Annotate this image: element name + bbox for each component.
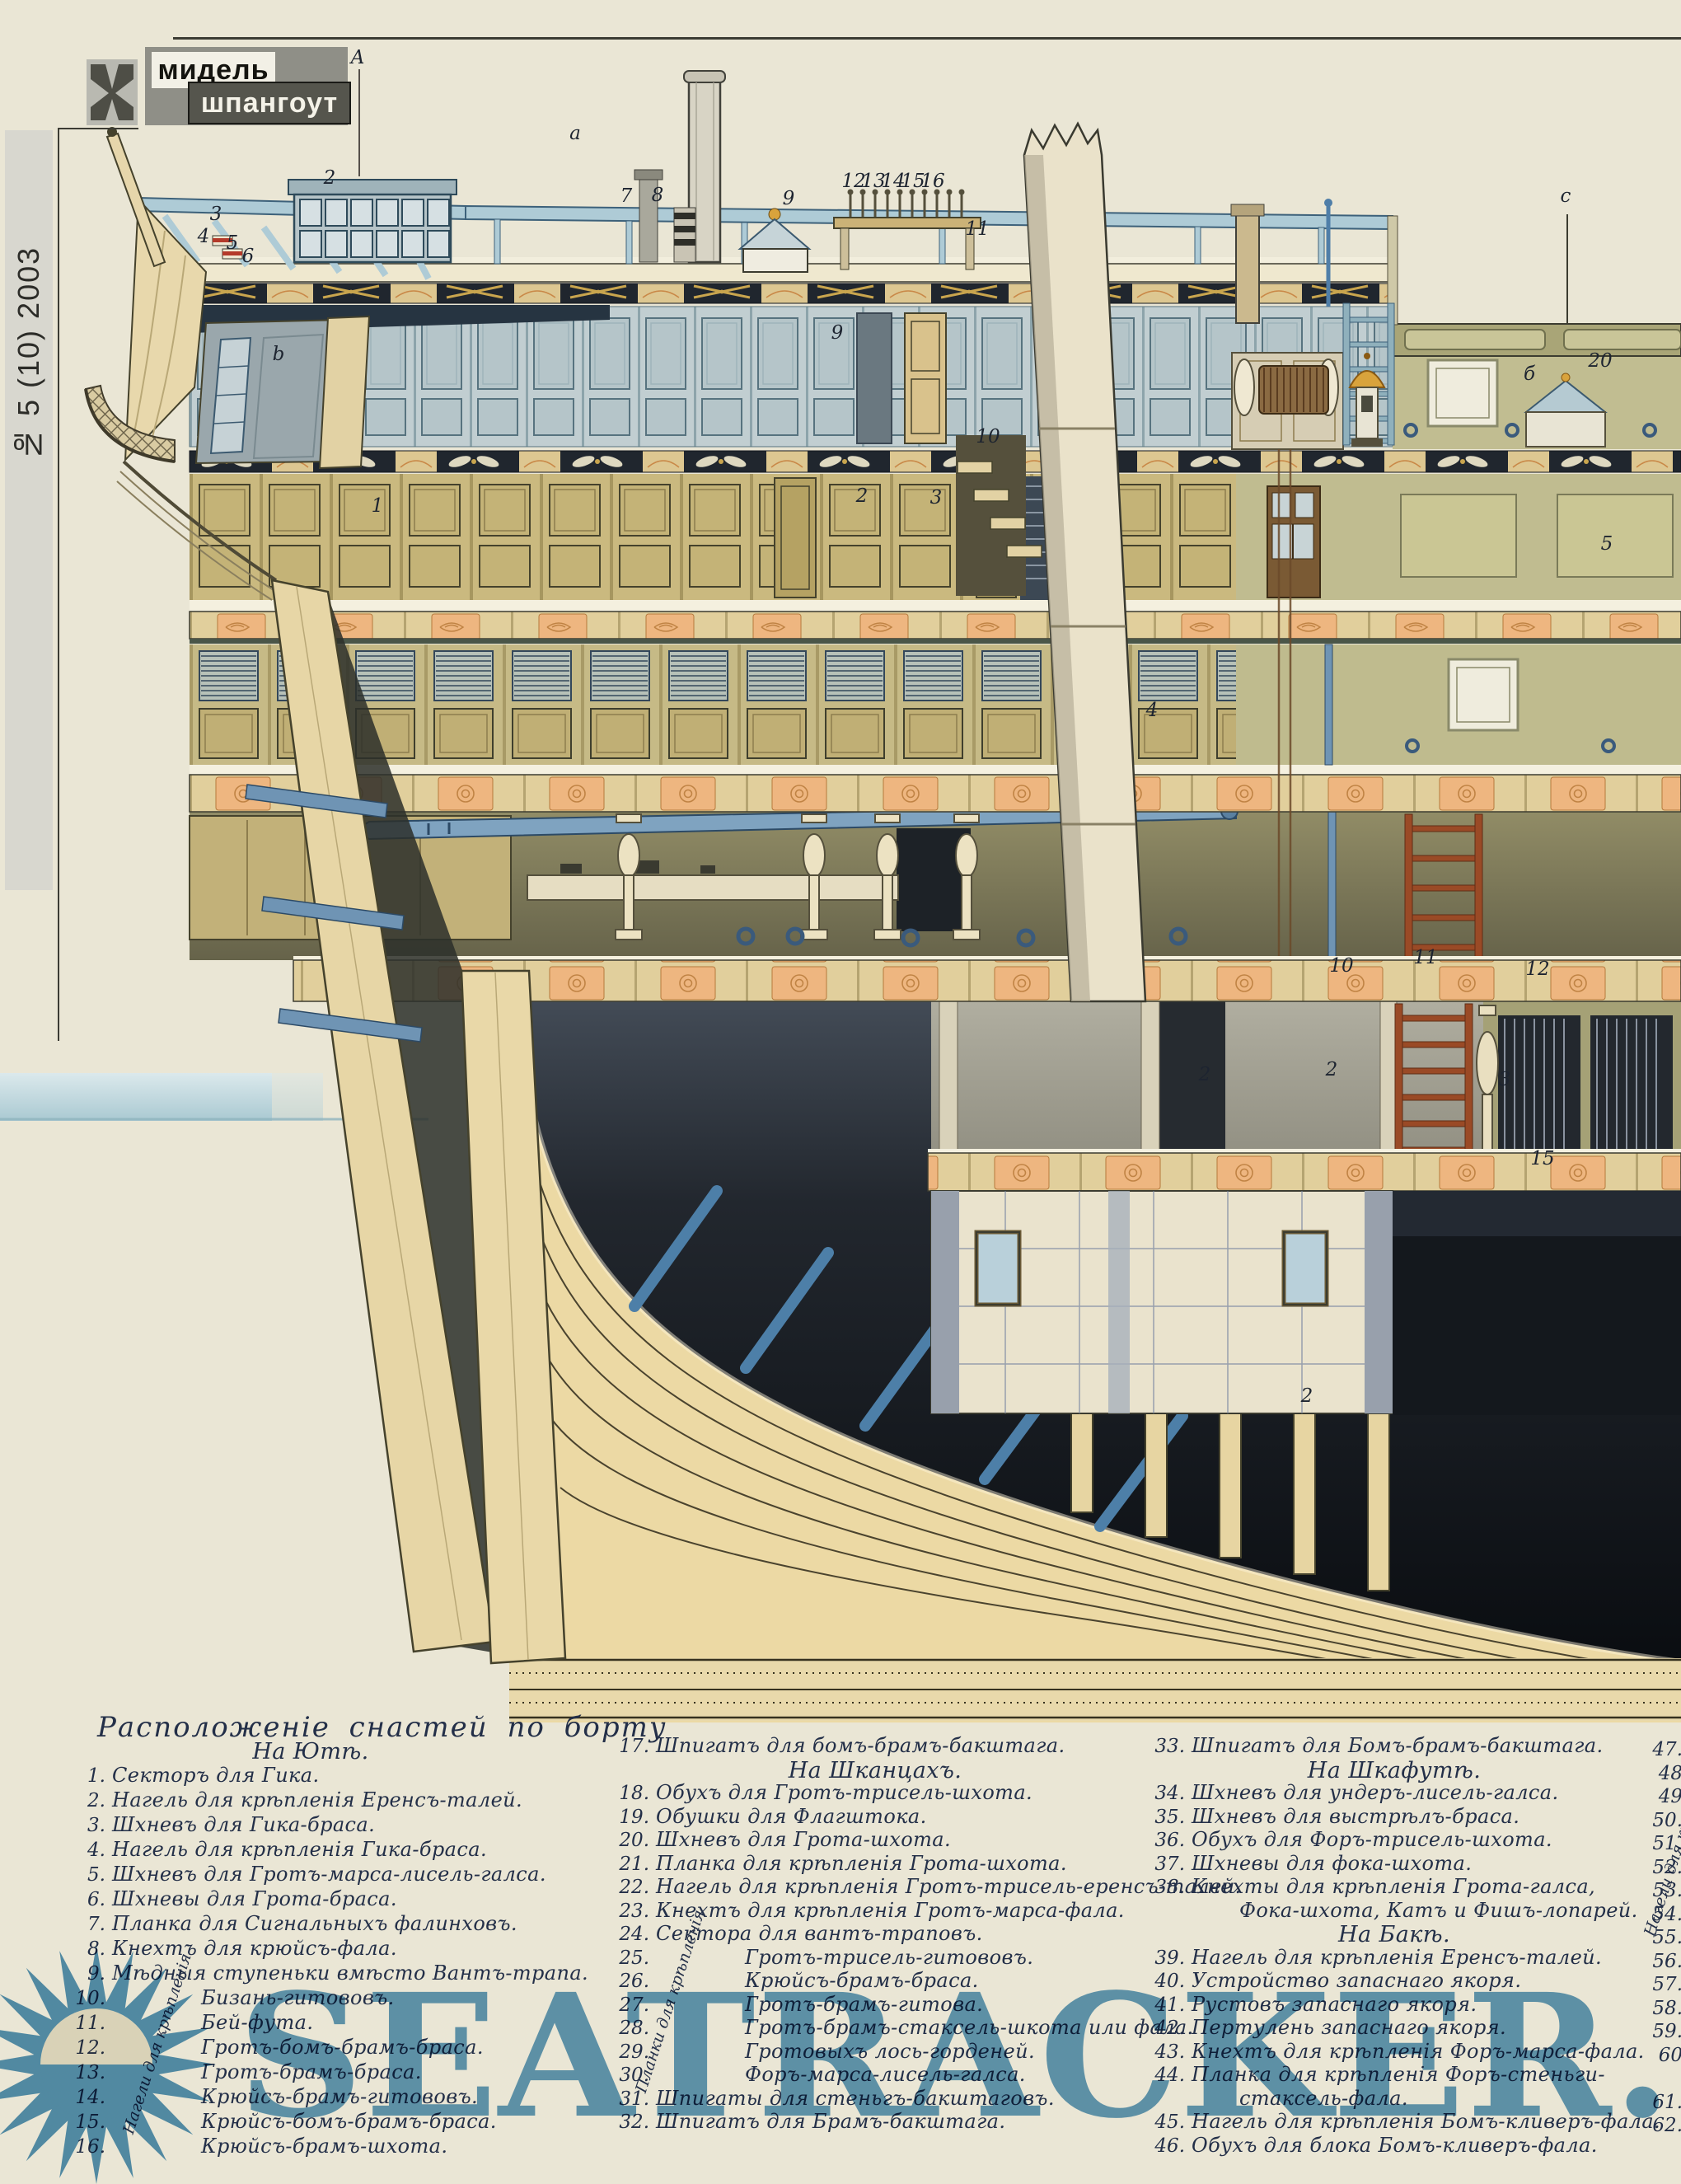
poop-cabin-wall [190, 307, 1393, 447]
legend-item: 38. Кнехты для крѣпленія Грота-галса, [1147, 1875, 1641, 1899]
legend-item: 4. Нагель для крѣпленія Гика-браса. [68, 1838, 554, 1863]
legend-item: 18. Обухъ для Гротъ-трисель-шхота. [611, 1781, 1139, 1805]
issue-number: № 5 (10) 2003 [8, 157, 49, 462]
legend-item: 2. Нагель для крѣпленія Еренсъ-талей. [68, 1788, 554, 1813]
legend-item: 48 Гр [1645, 1761, 1681, 1785]
poop-skylight [288, 180, 457, 262]
scanned-magazine-page: мидель шпангоут № 5 (10) 2003 Aa23456789… [0, 0, 1681, 2184]
glazed-door [1267, 486, 1320, 598]
louvered-bulkhead [190, 644, 1681, 765]
midship-frame-icon [87, 59, 138, 125]
legend-item: 35. Шхневъ для выстрѣлъ-браса. [1147, 1805, 1641, 1829]
legend-item: Фока-шхота, Катъ и Фишъ-лопарей. [1147, 1899, 1641, 1923]
funnel [634, 71, 725, 262]
masthead-brand-bottom: шпангоут [188, 82, 351, 124]
legend-item: 17. Шпигатъ для бомъ-брамъ-бакштага. [611, 1734, 1139, 1758]
legend-item: 37. Шхневы для фока-шхота. [1147, 1852, 1641, 1876]
legend-item: 1. Секторъ для Гика. [68, 1764, 554, 1788]
legend-item: 19. Обушки для Флагштока. [611, 1805, 1139, 1829]
legend-item: 34. Шхневъ для ундеръ-лисель-галса. [1147, 1781, 1641, 1805]
legend-item: На Бакѣ. [1147, 1922, 1641, 1946]
legend-item: На Шканцахъ. [611, 1758, 1139, 1782]
legend-item: На Шкафутѣ. [1147, 1758, 1641, 1782]
frame-line-horizontal [58, 128, 138, 129]
legend-item: 49 Ф [1645, 1784, 1681, 1808]
legend-item: 21. Планка для крѣпленія Грота-шхота. [611, 1852, 1139, 1876]
legend-item: На Ютѣ. [68, 1739, 554, 1764]
legend-item: 20. Шхневъ для Грота-шхота. [611, 1828, 1139, 1852]
frame-line-vertical [58, 128, 59, 1041]
watermark-sun-logo [0, 1929, 232, 2184]
legend-item: 33. Шпигатъ для Бомъ-брамъ-бакштага. [1147, 1734, 1641, 1758]
page-top-rule [173, 37, 1681, 40]
legend-item: 5. Шхневъ для Гротъ-марса-лисель-галса. [68, 1863, 554, 1887]
cabin-wall-khaki [190, 474, 1681, 600]
legend-item: 22. Нагель для крѣпленія Гротъ-трисель-е… [611, 1875, 1139, 1899]
orlop-cabin [931, 1191, 1681, 1415]
watermark-text: SEATRACKER.RU [237, 1971, 1681, 2141]
legend-item: 3. Шхневъ для Гика-браса. [68, 1813, 554, 1838]
legend-item: 36. Обухъ для Форъ-трисель-шхота. [1147, 1828, 1641, 1852]
waist-bulwark [1393, 214, 1681, 449]
legend-item: 47. И [1645, 1737, 1681, 1761]
legend-item: 6. Шхневы для Грота-браса. [68, 1887, 554, 1912]
